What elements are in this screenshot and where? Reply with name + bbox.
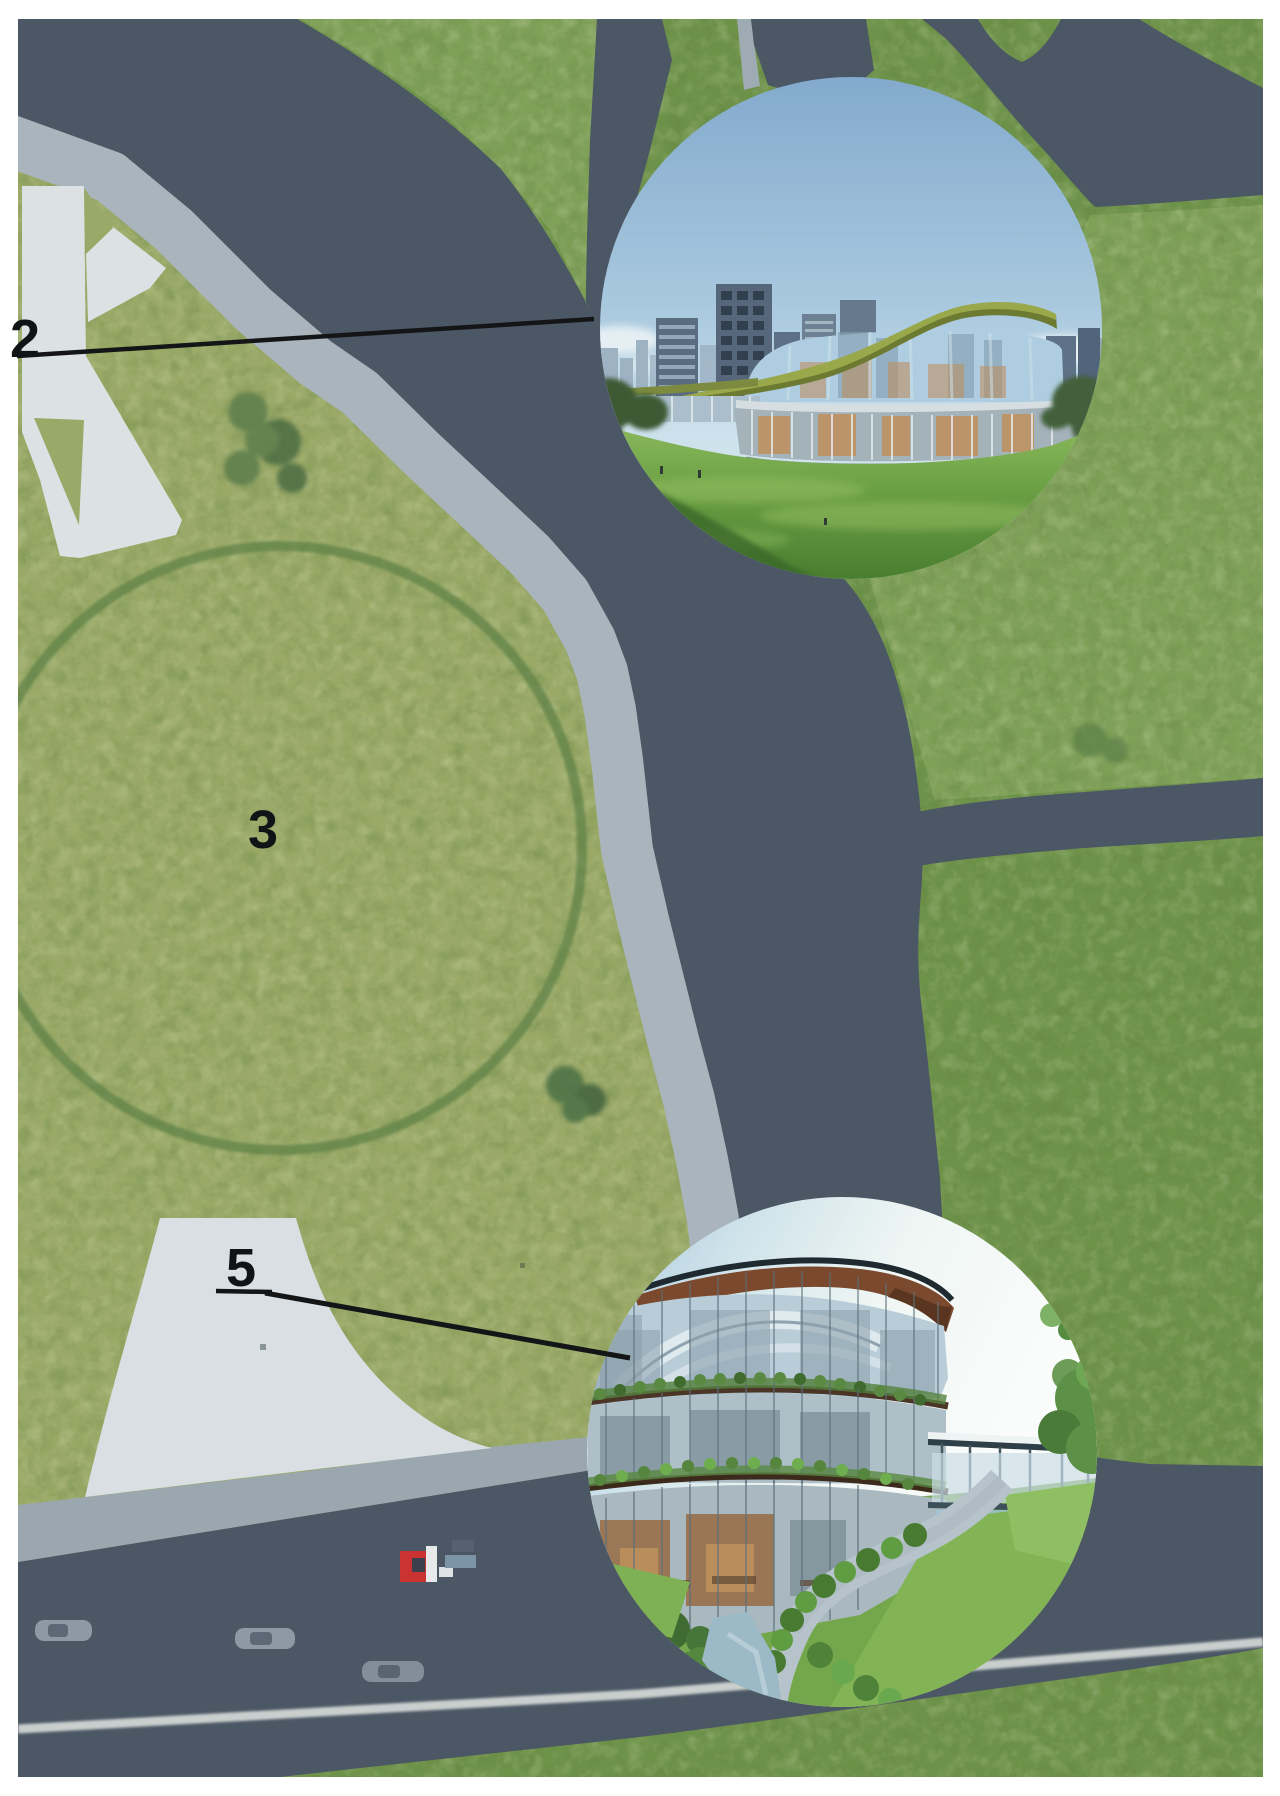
svg-text:5: 5 bbox=[226, 1238, 256, 1298]
svg-text:2: 2 bbox=[10, 309, 40, 369]
svg-text:3: 3 bbox=[248, 800, 278, 860]
